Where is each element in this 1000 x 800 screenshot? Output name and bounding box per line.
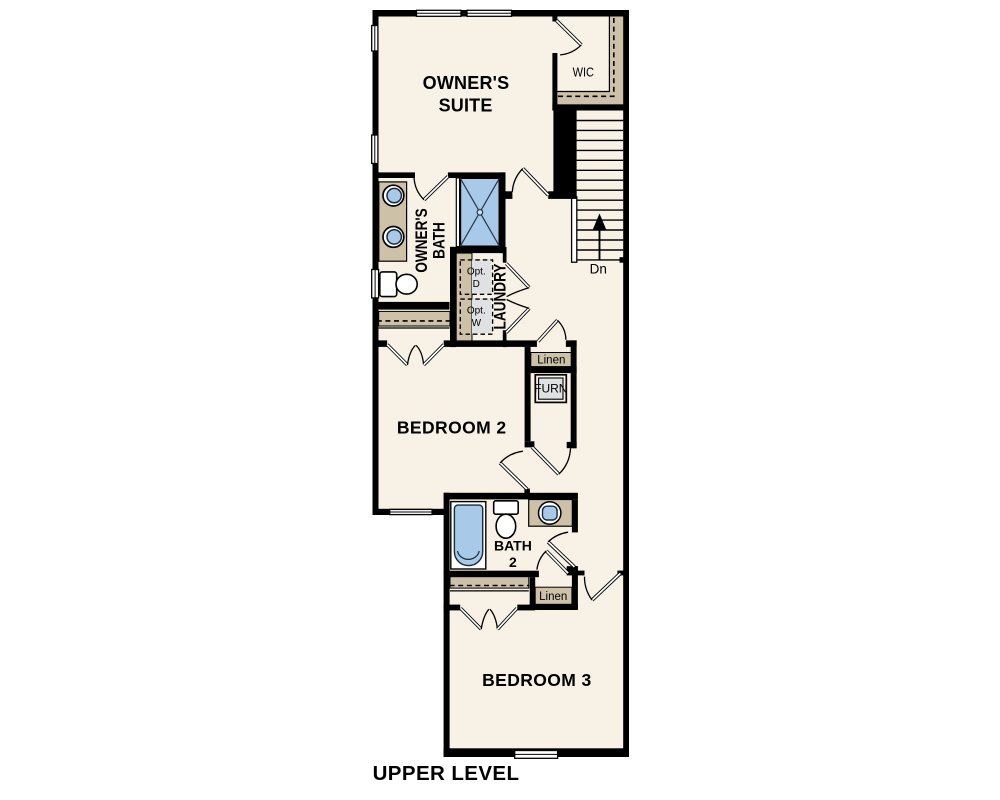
svg-text:BATH: BATH <box>430 222 449 259</box>
svg-text:BATH: BATH <box>494 538 532 554</box>
svg-text:W: W <box>472 318 482 329</box>
svg-text:OWNER'S: OWNER'S <box>423 73 510 93</box>
svg-text:LAUNDRY: LAUNDRY <box>491 264 510 330</box>
svg-text:2: 2 <box>509 554 517 570</box>
svg-text:OWNER'S: OWNER'S <box>413 208 432 272</box>
svg-text:SUITE: SUITE <box>439 95 493 115</box>
svg-text:D: D <box>473 279 480 290</box>
svg-text:BEDROOM 3: BEDROOM 3 <box>482 670 592 690</box>
svg-text:FURN: FURN <box>534 382 567 396</box>
svg-text:Linen: Linen <box>539 591 567 603</box>
svg-text:Dn: Dn <box>590 262 607 277</box>
svg-text:Opt.: Opt. <box>467 306 486 317</box>
svg-text:WIC: WIC <box>573 66 595 80</box>
svg-text:Linen: Linen <box>537 355 565 367</box>
svg-text:UPPER LEVEL: UPPER LEVEL <box>373 762 520 785</box>
svg-text:BEDROOM 2: BEDROOM 2 <box>397 418 507 438</box>
svg-text:Opt.: Opt. <box>467 266 486 277</box>
